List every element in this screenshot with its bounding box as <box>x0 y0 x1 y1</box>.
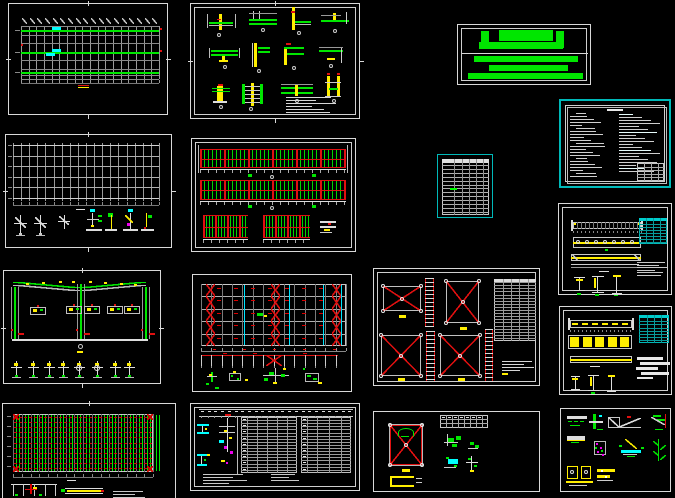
dim-tick <box>243 240 244 243</box>
note-line <box>637 270 655 271</box>
red-dash <box>217 288 221 289</box>
gusset-circle <box>576 240 580 244</box>
cad-line <box>39 494 42 496</box>
grid-line <box>151 143 152 201</box>
label-dot <box>104 282 107 284</box>
cyan-line <box>289 285 290 345</box>
rung <box>425 298 434 299</box>
yellow-dash <box>572 323 578 325</box>
gusset-circle <box>270 175 274 179</box>
rung <box>425 326 434 327</box>
sheet-foundation-plan <box>5 134 172 248</box>
table-line <box>301 429 351 430</box>
cad-line <box>312 205 316 208</box>
cad-line <box>665 414 666 428</box>
table-line <box>301 445 351 446</box>
cad-line <box>264 378 268 381</box>
dim-tick <box>224 170 225 173</box>
gusset-circle <box>444 279 448 283</box>
gusset-circle <box>381 309 385 313</box>
note-line <box>570 146 605 147</box>
rung <box>425 290 434 291</box>
note-line <box>286 109 324 110</box>
cad-line <box>502 373 508 375</box>
rung <box>425 286 434 287</box>
table-line <box>241 460 297 461</box>
red-dash-row <box>14 443 152 444</box>
header-mark <box>322 411 325 412</box>
sheet-x-bracing-details <box>373 268 540 386</box>
rung <box>425 322 434 323</box>
border-tick <box>159 328 164 329</box>
dim-tick <box>232 366 233 368</box>
dim-tick <box>235 240 236 243</box>
cad-line <box>605 222 606 229</box>
grid-line <box>118 143 119 201</box>
table-line <box>639 242 667 243</box>
cad-line <box>597 475 610 478</box>
dim-tick <box>295 240 296 243</box>
x-brace-cell <box>206 309 215 321</box>
table-line <box>241 445 297 446</box>
dim-tick <box>585 231 586 233</box>
label-dot <box>89 281 92 283</box>
cad-line <box>569 485 587 486</box>
header-mark <box>235 411 238 412</box>
gusset-circle <box>621 240 625 244</box>
cad-line <box>219 426 235 427</box>
cell-mark <box>466 417 469 418</box>
green-bar <box>468 73 583 79</box>
x-brace-cell <box>206 284 215 296</box>
cell-mark <box>243 425 246 426</box>
note-line <box>619 129 648 130</box>
cad-line <box>217 19 221 20</box>
sheet-design-notes <box>559 99 671 188</box>
note-line <box>570 134 603 135</box>
cad-line <box>448 459 458 464</box>
cad-line <box>468 458 471 460</box>
cad-line <box>641 447 644 449</box>
cad-line <box>231 375 233 377</box>
dim-tick <box>15 30 20 31</box>
dim-tick <box>7 416 11 417</box>
cad-line <box>456 436 461 440</box>
note-line <box>271 480 299 481</box>
cad-diagonal <box>59 216 69 225</box>
dim-tick <box>256 170 257 173</box>
note-line <box>570 140 591 141</box>
dim-tick <box>336 366 337 368</box>
cad-line <box>607 391 616 392</box>
dim-tick <box>618 330 619 332</box>
red-dash <box>285 338 289 339</box>
table-line <box>301 464 351 465</box>
gusset-circle <box>612 240 616 244</box>
base-line <box>200 169 346 170</box>
header-mark <box>241 411 244 412</box>
cad-line <box>75 377 84 378</box>
cad-line <box>213 349 216 350</box>
dim-tick <box>320 170 321 173</box>
rung <box>426 339 435 340</box>
title-underline <box>78 87 89 88</box>
cad-line <box>243 349 246 350</box>
title-mark <box>607 109 623 111</box>
red-dash <box>217 325 221 326</box>
gusset-circle <box>438 333 442 337</box>
note-line <box>619 150 651 151</box>
dim-tick <box>8 145 12 146</box>
cad-line <box>197 432 209 434</box>
cyan-line <box>323 285 324 345</box>
post <box>222 355 223 366</box>
cad-line <box>328 223 331 225</box>
rung <box>426 343 435 344</box>
cad-line <box>203 237 248 238</box>
note-line <box>570 119 594 120</box>
table-line <box>494 335 536 336</box>
cad-line <box>568 318 570 330</box>
red-dash <box>251 288 255 289</box>
rung <box>485 353 493 354</box>
dim-text-mark <box>68 18 73 24</box>
gusset-circle <box>261 28 265 32</box>
table-line <box>639 230 667 231</box>
table-line <box>646 218 647 244</box>
cad-line <box>617 427 641 428</box>
table-line <box>494 304 536 305</box>
cad-line <box>452 444 457 447</box>
rung <box>425 282 434 283</box>
cell-mark <box>472 417 475 418</box>
sheet-material-table <box>437 154 493 218</box>
cad-line <box>11 367 22 368</box>
cad-line <box>111 215 112 229</box>
dim-tick <box>227 240 228 243</box>
dim-tick <box>344 202 345 205</box>
x-brace-cell <box>206 296 215 308</box>
grid-line <box>135 143 136 201</box>
column-mark <box>224 149 226 168</box>
base-mark <box>149 333 155 335</box>
border-tick <box>88 114 89 119</box>
gusset-circle <box>419 284 423 288</box>
cad-line <box>245 94 260 95</box>
cad-line <box>33 487 37 489</box>
cad-line <box>249 13 277 14</box>
table-line <box>464 415 465 428</box>
cad-line <box>617 222 618 229</box>
cad-line <box>585 222 586 229</box>
cad-line <box>447 434 448 446</box>
dim-tick <box>253 366 254 368</box>
table-line <box>494 338 536 339</box>
cad-diagonal <box>625 439 637 449</box>
yellow-dash <box>622 323 628 325</box>
table-line <box>494 285 536 286</box>
table-line <box>494 288 536 289</box>
cad-line <box>245 90 260 91</box>
cad-line <box>466 462 478 463</box>
red-dot <box>21 44 23 46</box>
green-bar <box>479 42 563 49</box>
gusset-circle <box>223 65 227 69</box>
table-line <box>446 415 447 428</box>
cad-line <box>307 375 311 377</box>
cad-line <box>619 445 622 447</box>
cad-line <box>199 409 353 410</box>
cad-line <box>597 429 603 430</box>
table-line <box>458 415 459 428</box>
table-line <box>301 457 351 458</box>
cad-line <box>77 351 83 353</box>
cad-line <box>141 229 154 231</box>
red-dash <box>251 338 255 339</box>
cad-line <box>574 277 585 278</box>
dim-text-mark <box>30 18 35 24</box>
cell-mark <box>303 450 306 451</box>
cad-line <box>597 222 598 229</box>
cad-line <box>571 267 639 268</box>
cyan-line <box>341 285 342 345</box>
cad-line <box>141 329 143 331</box>
cad-line <box>333 349 336 350</box>
cad-diagonal <box>653 441 659 446</box>
yellow-cell <box>608 337 617 347</box>
red-dash <box>319 313 323 314</box>
cad-line <box>592 292 604 293</box>
cad-line <box>601 450 603 452</box>
column-mark <box>248 180 250 200</box>
cad-line <box>203 227 248 228</box>
x-brace-cell <box>271 309 280 321</box>
gusset-circle <box>379 333 383 337</box>
cad-line <box>98 220 102 222</box>
cad-line <box>571 220 573 231</box>
table-line <box>301 442 351 443</box>
note-line <box>286 100 316 101</box>
dim-tick <box>617 231 618 233</box>
cad-line <box>600 447 602 449</box>
cad-line <box>611 377 612 391</box>
x-brace-cell <box>271 296 280 308</box>
label-dot <box>59 281 62 283</box>
cad-line <box>76 329 78 331</box>
cad-line <box>58 367 69 368</box>
cad-line <box>117 308 120 310</box>
column-mark <box>320 149 322 168</box>
gusset-circle <box>297 31 301 35</box>
gusset-circle <box>478 333 482 337</box>
table-line <box>442 192 489 193</box>
cad-line <box>295 21 311 23</box>
header-mark <box>201 411 204 412</box>
cad-line <box>320 226 336 228</box>
cad-line <box>127 223 130 226</box>
post <box>23 484 24 496</box>
x-brace-cell <box>332 309 341 321</box>
cad-line <box>588 375 599 376</box>
cad-line <box>284 53 304 55</box>
cad-line <box>264 315 267 317</box>
cad-diagonal <box>15 217 26 228</box>
cad-line <box>233 371 236 373</box>
table-line <box>301 426 351 427</box>
table-line <box>494 329 536 330</box>
cad-line <box>474 465 477 467</box>
yellow-dash <box>592 323 598 325</box>
cad-line <box>601 470 603 472</box>
rung <box>485 373 493 374</box>
grid-line <box>201 284 202 346</box>
note-line <box>271 477 289 478</box>
dim-tick <box>629 231 630 233</box>
note-line <box>570 164 595 165</box>
column-mark <box>344 180 346 200</box>
cad-line <box>148 215 152 218</box>
dim-tick <box>589 231 590 233</box>
cad-line <box>633 222 634 229</box>
red-dash <box>268 313 272 314</box>
cad-line <box>273 382 277 384</box>
grid-line <box>70 143 71 201</box>
cad-line <box>149 287 150 339</box>
table-line <box>483 159 484 215</box>
rung <box>426 371 435 372</box>
note-line <box>576 158 587 159</box>
cad-line <box>252 43 253 67</box>
post <box>45 484 46 496</box>
post <box>253 355 254 366</box>
rung <box>425 306 434 307</box>
base-line <box>12 339 148 341</box>
grid-line <box>13 177 159 178</box>
table-line <box>241 429 297 430</box>
cad-line <box>596 443 598 445</box>
table-line <box>241 467 297 468</box>
cad-line <box>197 454 207 456</box>
red-dash <box>302 325 306 326</box>
header-mark <box>214 411 217 412</box>
dim-tick <box>609 231 610 233</box>
note-line <box>570 152 593 153</box>
cad-line <box>341 47 342 63</box>
cad-line <box>597 480 613 481</box>
note-line <box>619 135 636 136</box>
border-tick <box>88 247 89 252</box>
dim-line <box>21 83 159 84</box>
cad-line <box>110 367 121 368</box>
table-line <box>301 436 351 437</box>
table-line <box>307 417 308 473</box>
cad-line <box>207 14 208 28</box>
dim-tick <box>578 330 579 332</box>
cad-line <box>303 349 306 350</box>
border-tick <box>88 132 89 137</box>
note-line <box>570 125 582 126</box>
rung <box>485 361 493 362</box>
red-dash-row <box>14 432 152 433</box>
grid-line <box>127 143 128 201</box>
table-line <box>494 326 536 327</box>
dim-text-mark <box>37 18 42 24</box>
table-line <box>301 451 351 452</box>
cad-line <box>44 367 55 368</box>
red-dash <box>234 288 238 289</box>
red-dot <box>160 50 162 52</box>
green-bar <box>489 65 568 71</box>
red-dash <box>319 300 323 301</box>
stair-bar <box>641 372 669 375</box>
cad-line <box>211 50 238 52</box>
rung <box>485 341 493 342</box>
red-dash <box>234 300 238 301</box>
dim-tick <box>288 170 289 173</box>
cell-mark <box>243 419 246 420</box>
dim-tick <box>7 456 11 457</box>
gusset-circle <box>478 374 482 378</box>
column-mark <box>215 215 217 238</box>
purlin-line <box>159 415 160 471</box>
header-mark <box>342 411 345 412</box>
cad-line <box>61 489 65 492</box>
cad-line <box>283 368 286 370</box>
column-mark <box>296 180 298 200</box>
chord-line <box>21 72 159 74</box>
red-dash <box>251 325 255 326</box>
cad-line <box>303 353 307 354</box>
cad-line <box>303 368 305 370</box>
red-dash <box>285 288 289 289</box>
note-line <box>570 161 588 162</box>
table-line <box>476 159 477 215</box>
rung <box>426 363 435 364</box>
note-line <box>619 165 636 166</box>
cad-line <box>206 383 209 385</box>
gusset-circle <box>584 470 588 474</box>
cad-line <box>273 349 276 350</box>
red-dash <box>234 313 238 314</box>
red-dash <box>319 325 323 326</box>
note-line <box>637 262 665 263</box>
red-dash <box>319 338 323 339</box>
border-tick <box>6 59 11 60</box>
x-brace-cell <box>206 321 215 333</box>
cad-line <box>212 88 230 89</box>
gusset-circle <box>78 344 83 349</box>
post <box>242 355 243 366</box>
dim-tick <box>346 348 347 351</box>
table-line <box>637 170 664 171</box>
table-line <box>241 451 297 452</box>
border-tick <box>82 268 83 273</box>
dim-tick <box>570 330 571 332</box>
sheet-member-schedules <box>190 403 360 491</box>
table-line <box>241 454 297 455</box>
sheet-green-title-block <box>457 24 591 85</box>
cad-line <box>212 91 230 92</box>
note-line <box>619 159 648 160</box>
gusset-circle <box>399 354 403 358</box>
note-line <box>619 147 642 148</box>
note-line <box>619 132 657 133</box>
cad-line <box>593 222 594 229</box>
dim-tick <box>263 240 264 243</box>
cad-line <box>65 488 103 489</box>
gusset-circle <box>329 64 333 68</box>
stair-bar <box>636 367 658 370</box>
